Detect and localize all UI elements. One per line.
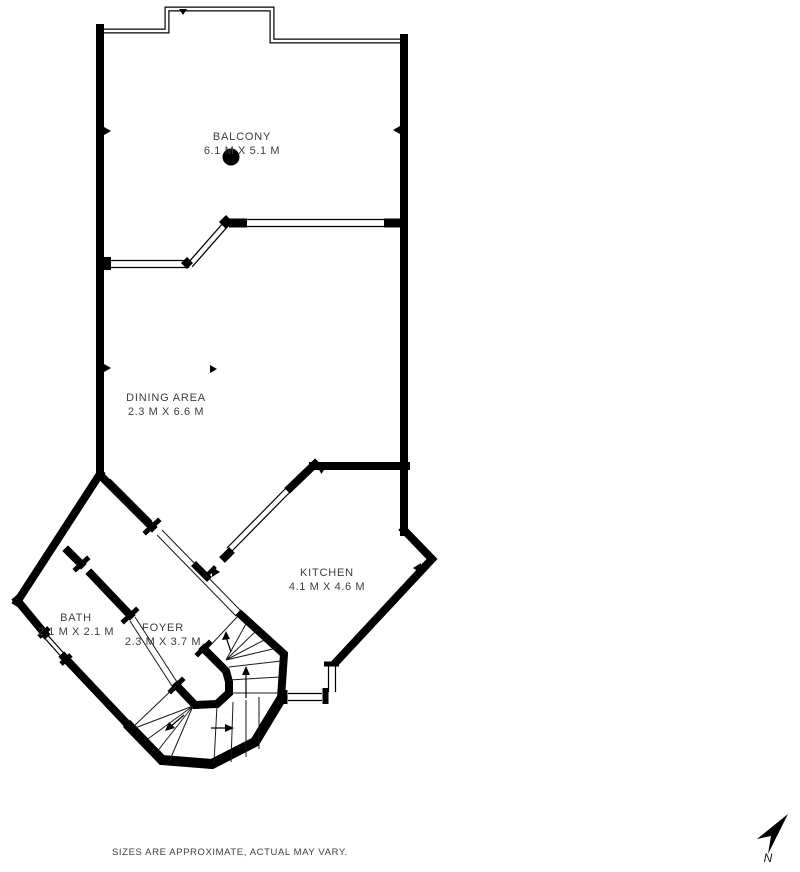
room-dimensions: 2.3 M X 6.6 M bbox=[126, 405, 206, 419]
disclaimer-text: SIZES ARE APPROXIMATE, ACTUAL MAY VARY. bbox=[112, 847, 348, 858]
room-dimensions: 2.3 M X 3.7 M bbox=[125, 635, 201, 649]
floorplan-drawing bbox=[0, 0, 800, 872]
room-label-dining-area: DINING AREA 2.3 M X 6.6 M bbox=[126, 391, 206, 419]
room-name: FOYER bbox=[125, 621, 201, 635]
room-name: BATH bbox=[38, 611, 114, 625]
plan-markers bbox=[104, 9, 421, 577]
room-name: BALCONY bbox=[204, 130, 280, 144]
north-arrow-icon bbox=[757, 814, 788, 854]
room-name: DINING AREA bbox=[126, 391, 206, 405]
balcony-railing bbox=[100, 9, 401, 41]
room-label-bath: BATH 2.1 M X 2.1 M bbox=[38, 611, 114, 639]
staircase-inner-wall bbox=[171, 643, 229, 705]
balcony-door bbox=[181, 215, 233, 269]
north-compass-label: N bbox=[764, 851, 773, 865]
room-label-kitchen: KITCHEN 4.1 M X 4.6 M bbox=[289, 566, 365, 594]
balcony-divider bbox=[96, 220, 404, 271]
room-label-balcony: BALCONY 6.1 M X 5.1 M bbox=[204, 130, 280, 158]
room-name: KITCHEN bbox=[289, 566, 365, 580]
room-dimensions: 2.1 M X 2.1 M bbox=[38, 625, 114, 639]
room-dimensions: 4.1 M X 4.6 M bbox=[289, 580, 365, 594]
room-dimensions: 6.1 M X 5.1 M bbox=[204, 144, 280, 158]
windows bbox=[39, 486, 339, 704]
floorplan-canvas: BALCONY 6.1 M X 5.1 M DINING AREA 2.3 M … bbox=[0, 0, 800, 872]
interior-walls bbox=[68, 479, 214, 621]
room-label-foyer: FOYER 2.3 M X 3.7 M bbox=[125, 621, 201, 649]
